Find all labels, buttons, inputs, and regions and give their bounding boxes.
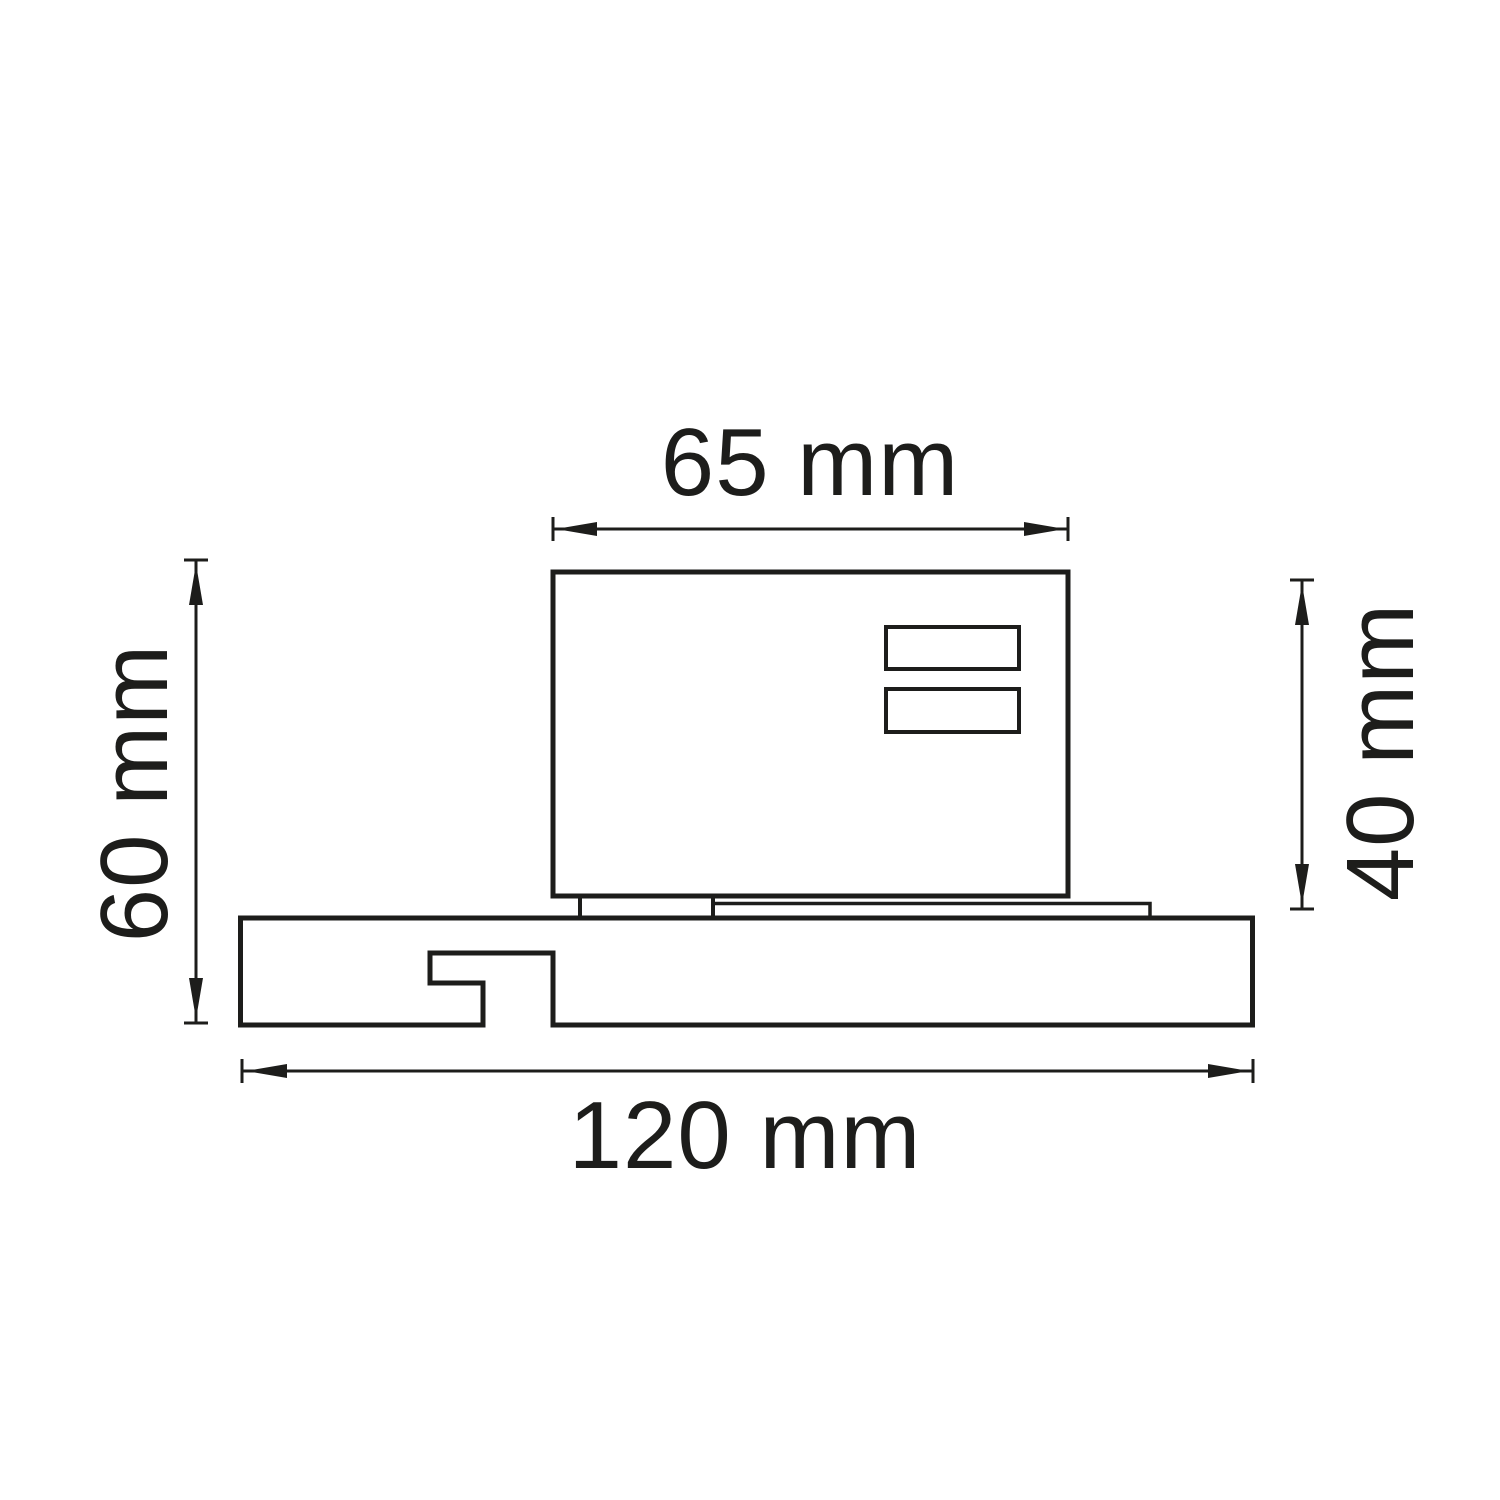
arrowhead-bottom-left — [246, 1064, 287, 1078]
dimension-total-height: 60 mm — [81, 560, 208, 1023]
arrowhead-right-bottom — [1295, 864, 1309, 905]
dimension-base-width: 120 mm — [242, 1059, 1253, 1189]
arrowhead-top-left — [556, 522, 597, 536]
arrowhead-left-top — [189, 564, 203, 605]
arrowhead-right-top — [1295, 584, 1309, 625]
product-geometry — [241, 572, 1253, 1025]
dimension-label-body-height: 40 mm — [1327, 603, 1434, 901]
dimension-body-height: 40 mm — [1290, 580, 1434, 909]
dimension-drawing-svg: 65 mm 60 mm 40 mm 120 mm — [0, 0, 1500, 1500]
technical-drawing-canvas: 65 mm 60 mm 40 mm 120 mm — [0, 0, 1500, 1500]
track-base-profile — [241, 918, 1253, 1025]
arrowhead-left-bottom — [189, 978, 203, 1019]
dimension-label-body-width: 65 mm — [661, 409, 959, 516]
arrowhead-bottom-right — [1208, 1064, 1249, 1078]
body-slot-lower — [886, 689, 1019, 732]
body-slot-upper — [886, 627, 1019, 669]
dimension-body-width: 65 mm — [553, 409, 1068, 541]
dimension-label-base-width: 120 mm — [569, 1082, 922, 1189]
dimension-label-total-height: 60 mm — [81, 644, 188, 942]
arrowhead-top-right — [1024, 522, 1065, 536]
